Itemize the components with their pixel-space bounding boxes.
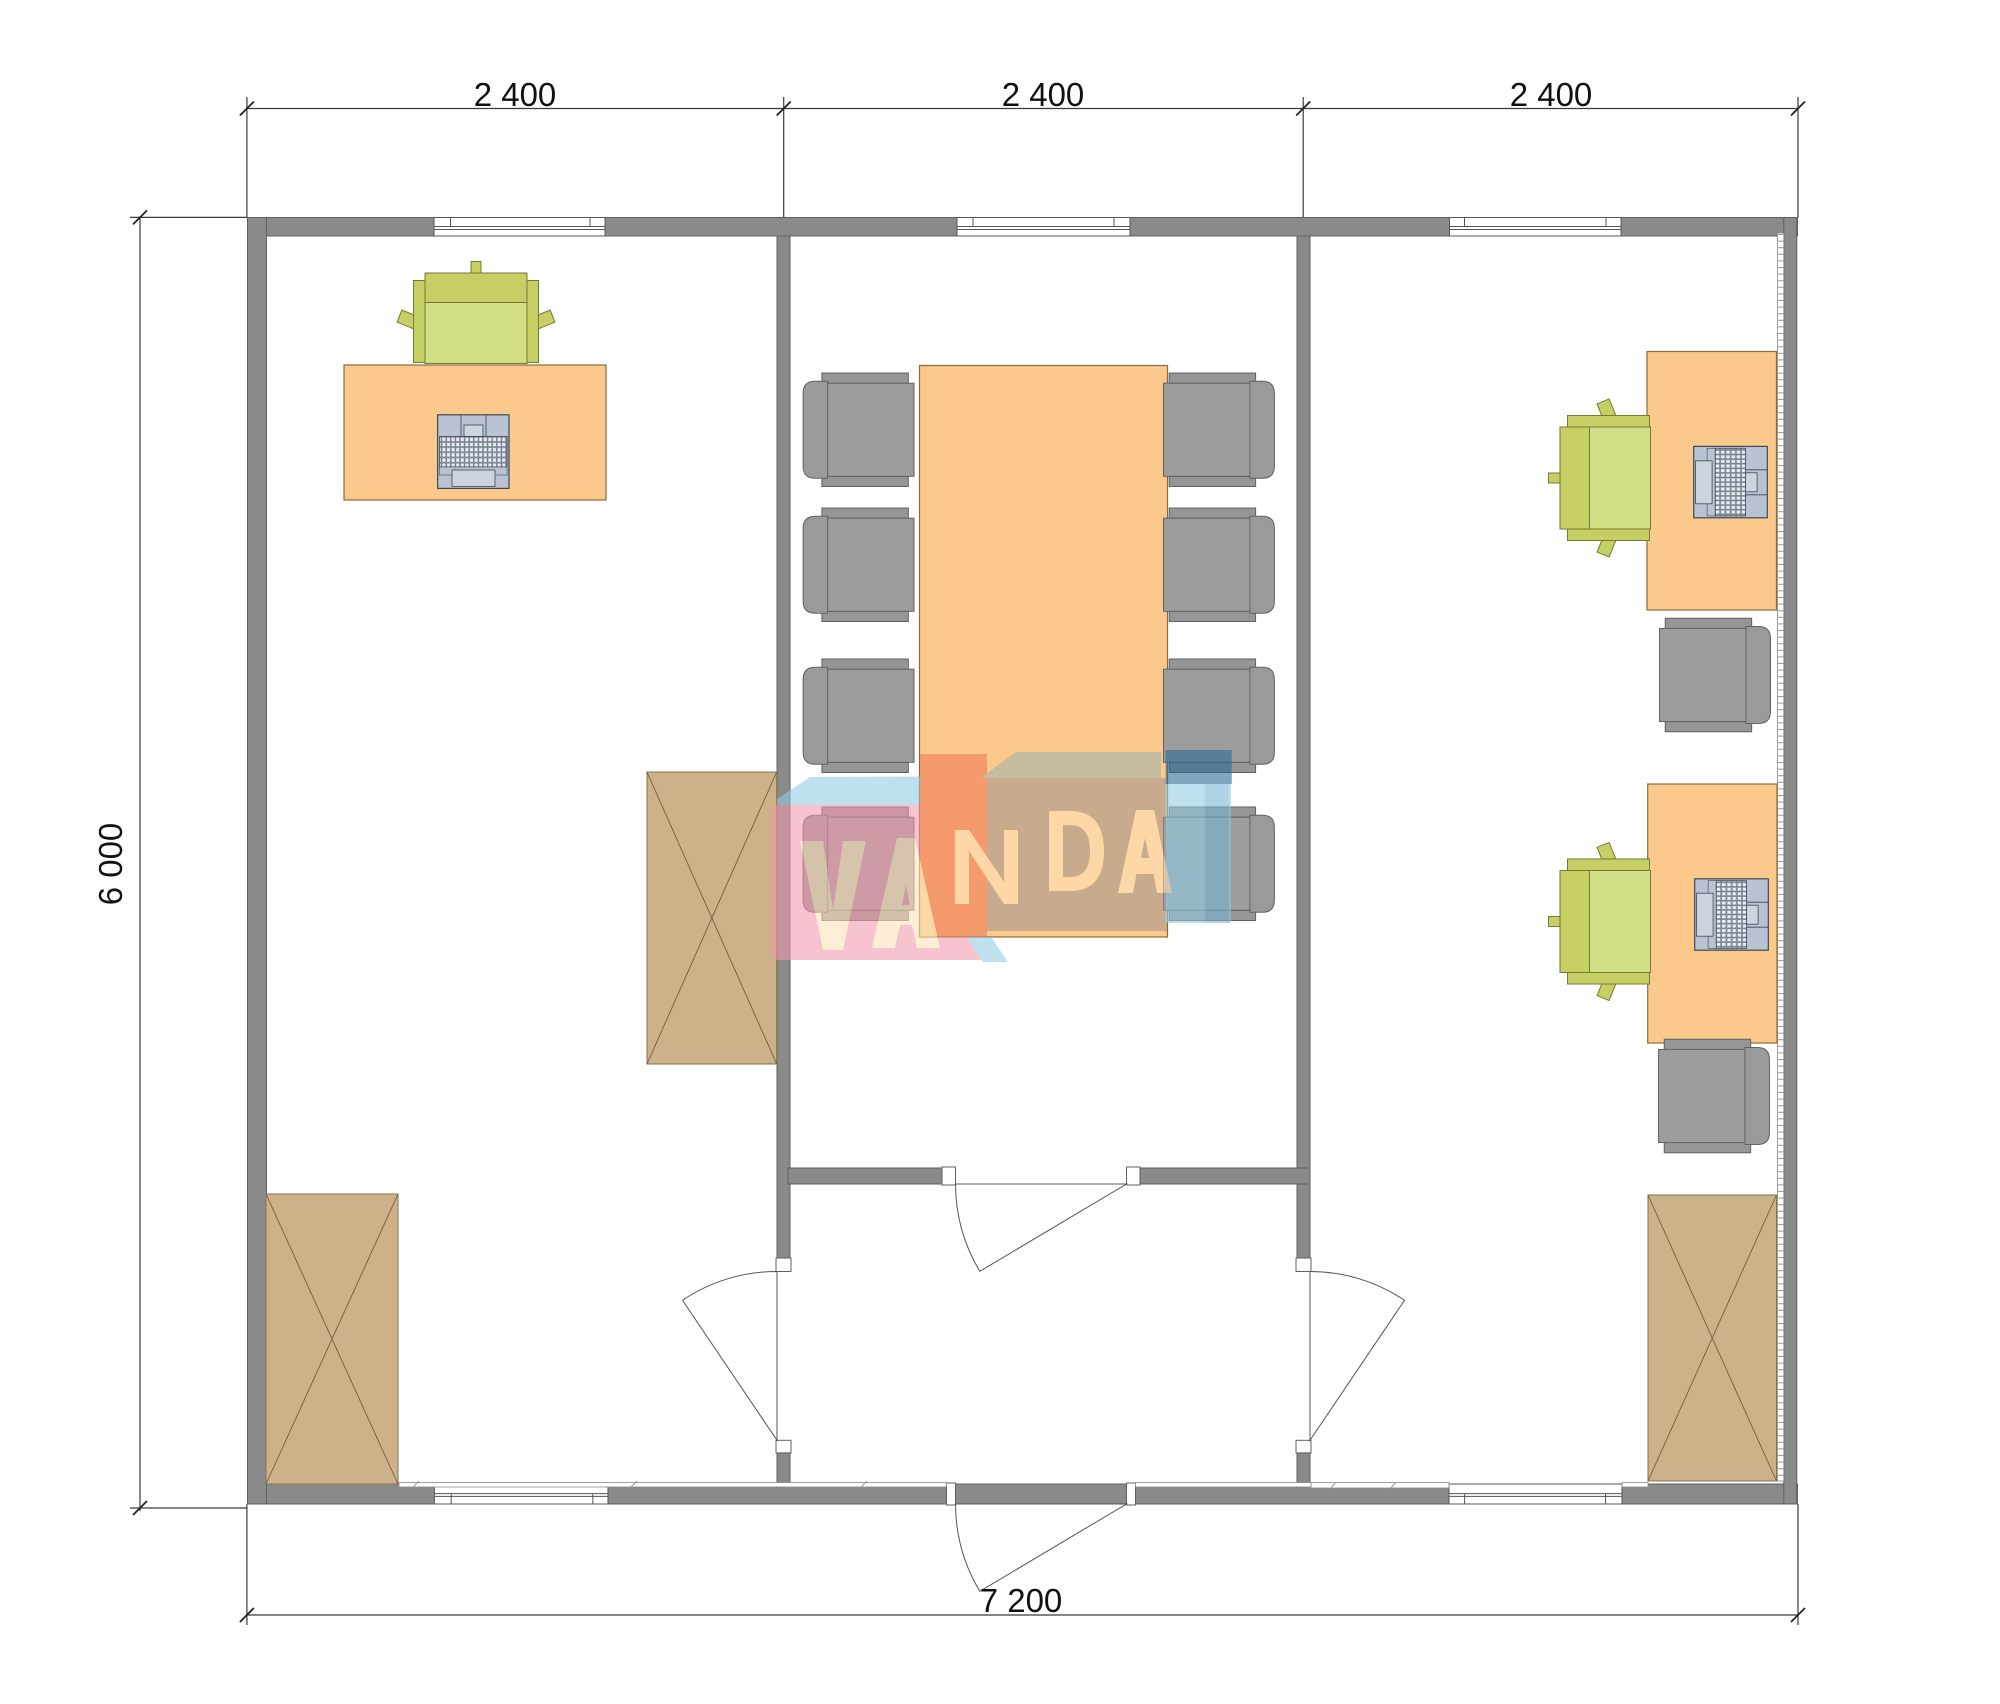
svg-text:6 000: 6 000 [92, 823, 129, 906]
svg-text:2 400: 2 400 [474, 76, 557, 113]
svg-text:2 400: 2 400 [1510, 76, 1593, 113]
svg-text:2 400: 2 400 [1002, 76, 1085, 113]
svg-text:7 200: 7 200 [980, 1582, 1063, 1619]
